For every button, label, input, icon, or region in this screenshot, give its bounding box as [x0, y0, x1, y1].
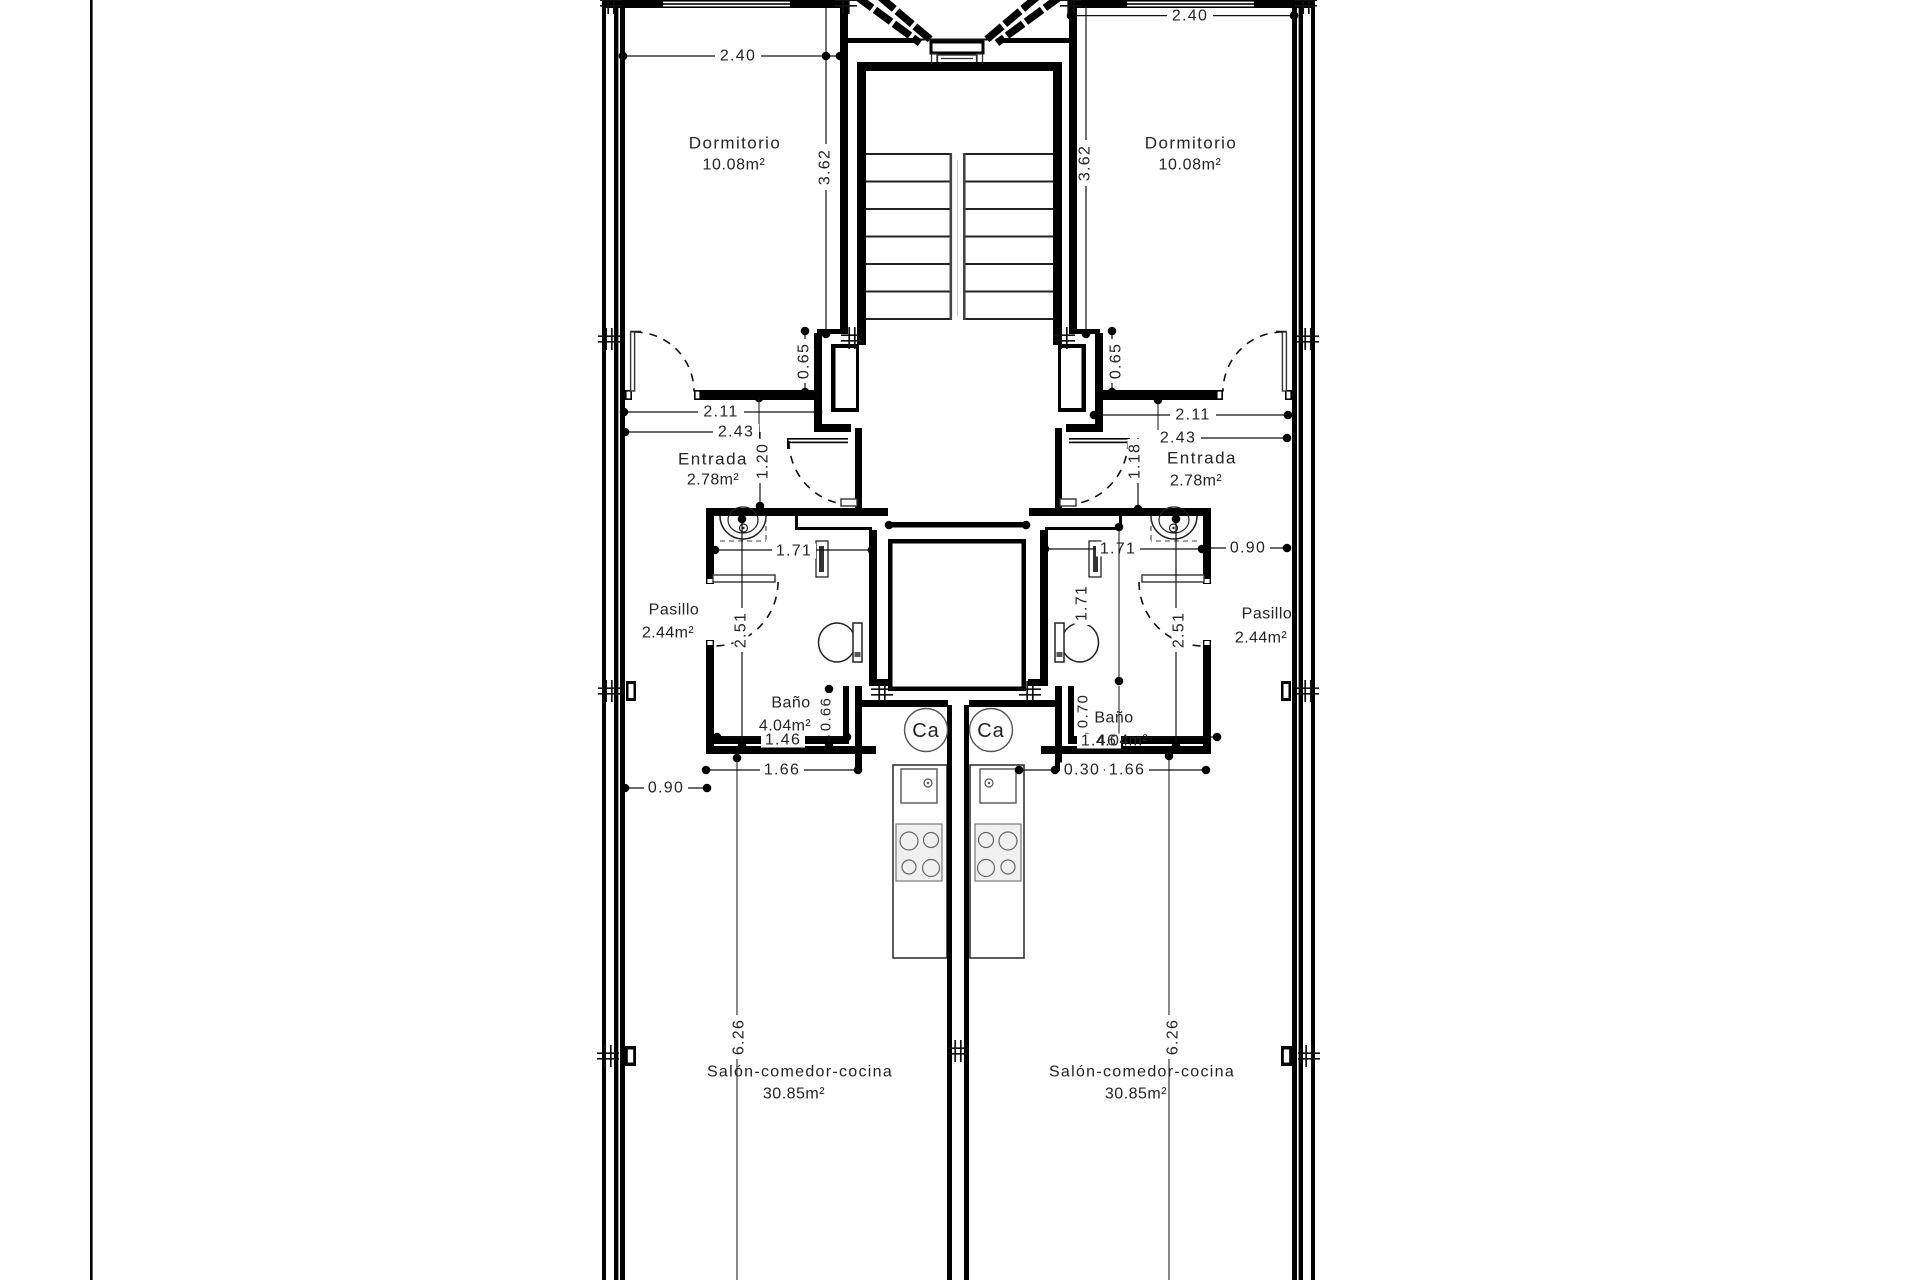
- svg-text:2.43: 2.43: [1160, 430, 1196, 447]
- svg-text:1.71: 1.71: [776, 543, 812, 560]
- svg-text:10.08m²: 10.08m²: [703, 157, 766, 174]
- svg-text:1.20: 1.20: [755, 443, 772, 479]
- svg-text:Dormitorio: Dormitorio: [1145, 134, 1237, 153]
- svg-text:0.90: 0.90: [1230, 540, 1266, 557]
- svg-text:2.78m²: 2.78m²: [687, 472, 739, 489]
- svg-text:Pasillo: Pasillo: [1242, 606, 1293, 623]
- svg-text:2.40: 2.40: [720, 48, 756, 65]
- svg-text:1.71: 1.71: [1074, 585, 1091, 621]
- svg-text:3.62: 3.62: [817, 149, 834, 185]
- svg-text:Dormitorio: Dormitorio: [689, 134, 781, 153]
- svg-text:Entrada: Entrada: [1167, 449, 1237, 468]
- svg-text:Pasillo: Pasillo: [649, 602, 700, 619]
- svg-text:30.85m²: 30.85m²: [763, 1086, 825, 1103]
- svg-text:10.08m²: 10.08m²: [1159, 157, 1222, 174]
- svg-text:Salón-comedor-cocina: Salón-comedor-cocina: [1049, 1064, 1235, 1081]
- svg-text:Ca: Ca: [912, 720, 940, 742]
- svg-text:3.62: 3.62: [1077, 145, 1094, 181]
- svg-text:2.11: 2.11: [1175, 407, 1210, 424]
- svg-text:2.44m²: 2.44m²: [642, 625, 694, 642]
- svg-text:Salón-comedor-cocina: Salón-comedor-cocina: [707, 1064, 893, 1081]
- svg-text:2.78m²: 2.78m²: [1170, 473, 1222, 490]
- svg-text:2.51: 2.51: [1171, 612, 1188, 648]
- svg-text:6.26: 6.26: [731, 1019, 748, 1055]
- svg-text:0.70: 0.70: [1075, 694, 1092, 728]
- svg-text:1.66: 1.66: [1109, 762, 1145, 779]
- svg-text:0.66: 0.66: [818, 697, 835, 731]
- svg-text:0.90: 0.90: [648, 780, 684, 797]
- svg-text:1.18: 1.18: [1127, 443, 1144, 479]
- svg-text:Ca: Ca: [977, 720, 1005, 742]
- svg-text:2.51: 2.51: [733, 612, 750, 648]
- svg-text:1.71: 1.71: [1100, 541, 1136, 558]
- svg-text:2.11: 2.11: [703, 404, 738, 421]
- svg-text:4.04m²: 4.04m²: [759, 718, 811, 735]
- svg-text:6.26: 6.26: [1165, 1019, 1182, 1055]
- svg-text:0.30: 0.30: [1064, 762, 1100, 779]
- svg-text:2.44m²: 2.44m²: [1235, 630, 1287, 647]
- svg-text:2.43: 2.43: [718, 424, 754, 441]
- svg-text:4.04m²: 4.04m²: [1096, 733, 1148, 750]
- svg-text:1.66: 1.66: [764, 762, 800, 779]
- svg-text:0.65: 0.65: [796, 343, 813, 379]
- svg-text:Entrada: Entrada: [678, 450, 748, 469]
- svg-text:Baño: Baño: [771, 695, 810, 712]
- svg-text:Baño: Baño: [1094, 710, 1133, 727]
- svg-text:30.85m²: 30.85m²: [1105, 1086, 1167, 1103]
- svg-text:2.40: 2.40: [1172, 8, 1208, 25]
- svg-text:0.65: 0.65: [1108, 343, 1125, 379]
